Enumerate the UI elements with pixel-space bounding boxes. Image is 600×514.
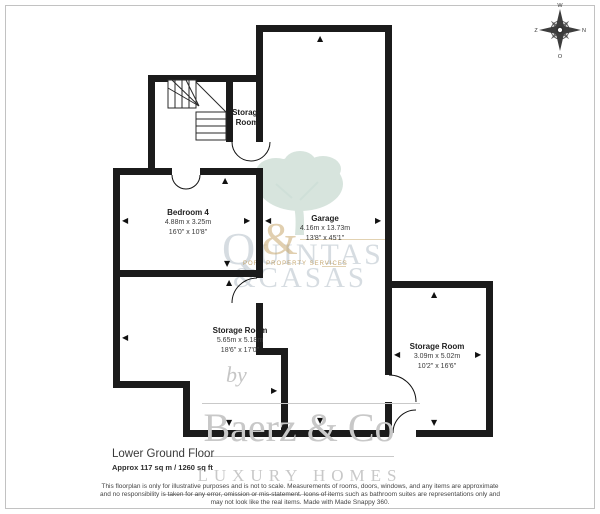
room-dimensions-metric: 4.88m x 3.25m [128, 218, 248, 228]
stairs-icon [168, 80, 226, 140]
room-label-garage: Garage 4.16m x 13.73m 13'8" x 45'1" [265, 214, 385, 244]
dimension-marker: ▲ [222, 177, 228, 185]
dimension-marker: ▲ [226, 279, 232, 287]
dimension-marker: ▼ [317, 417, 323, 425]
floorplan-page: QUINTAS & &CASAS PORT PROPERTY SERVICES [0, 0, 600, 514]
compass-letter-top: W [557, 3, 563, 9]
brand-rule-middle [204, 456, 394, 457]
room-name: Storage Room [180, 326, 300, 336]
room-label-storage-stairs: Storage Room [230, 108, 264, 128]
floor-area: Approx 117 sq m / 1260 sq ft [112, 463, 213, 472]
room-name: Storage Room [230, 108, 264, 128]
dimension-marker: ▶ [271, 387, 277, 395]
room-dimensions-imperial: 16'0" x 10'8" [128, 228, 248, 238]
plan-linework: W N O Z [0, 0, 600, 514]
dimension-marker: ▶ [375, 217, 381, 225]
floor-title: Lower Ground Floor [112, 448, 214, 460]
dimension-marker: ▲ [431, 291, 437, 299]
compass-icon: W N O Z [534, 3, 586, 60]
room-label-bedroom4: Bedroom 4 4.88m x 3.25m 16'0" x 10'8" [128, 208, 248, 238]
dimension-marker: ▼ [226, 419, 232, 427]
room-dimensions-imperial: 10'2" x 16'6" [377, 362, 497, 372]
dimension-marker: ▶ [244, 217, 250, 225]
dimension-marker: ◀ [394, 351, 400, 359]
room-label-storage-left: Storage Room 5.65m x 5.18m 18'6" x 17'0" [180, 326, 300, 356]
room-dimensions-metric: 5.65m x 5.18m [180, 336, 300, 346]
disclaimer-line: may not look like the real items. Made w… [60, 499, 540, 507]
disclaimer-line: This floorplan is only for illustrative … [60, 483, 540, 491]
dimension-marker: ◀ [265, 217, 271, 225]
room-name: Garage [265, 214, 385, 224]
compass-letter-right: N [582, 28, 586, 34]
door-arc [172, 142, 416, 433]
room-dimensions-metric: 4.16m x 13.73m [265, 224, 385, 234]
compass-letter-bottom: O [558, 54, 563, 60]
room-name: Bedroom 4 [128, 208, 248, 218]
brand-rule-top [202, 403, 420, 404]
dimension-marker: ▲ [317, 35, 323, 43]
dimension-marker: ◀ [122, 217, 128, 225]
disclaimer-line: and no responsibility is taken for any e… [60, 491, 540, 499]
dimension-marker: ▶ [475, 351, 481, 359]
dimension-marker: ◀ [122, 334, 128, 342]
room-dimensions-imperial: 18'6" x 17'0" [180, 346, 300, 356]
compass-letter-left: Z [534, 28, 538, 34]
dimension-marker: ▼ [431, 419, 437, 427]
room-dimensions-imperial: 13'8" x 45'1" [265, 234, 385, 244]
dimension-marker: ▼ [224, 260, 230, 268]
disclaimer: This floorplan is only for illustrative … [60, 483, 540, 507]
